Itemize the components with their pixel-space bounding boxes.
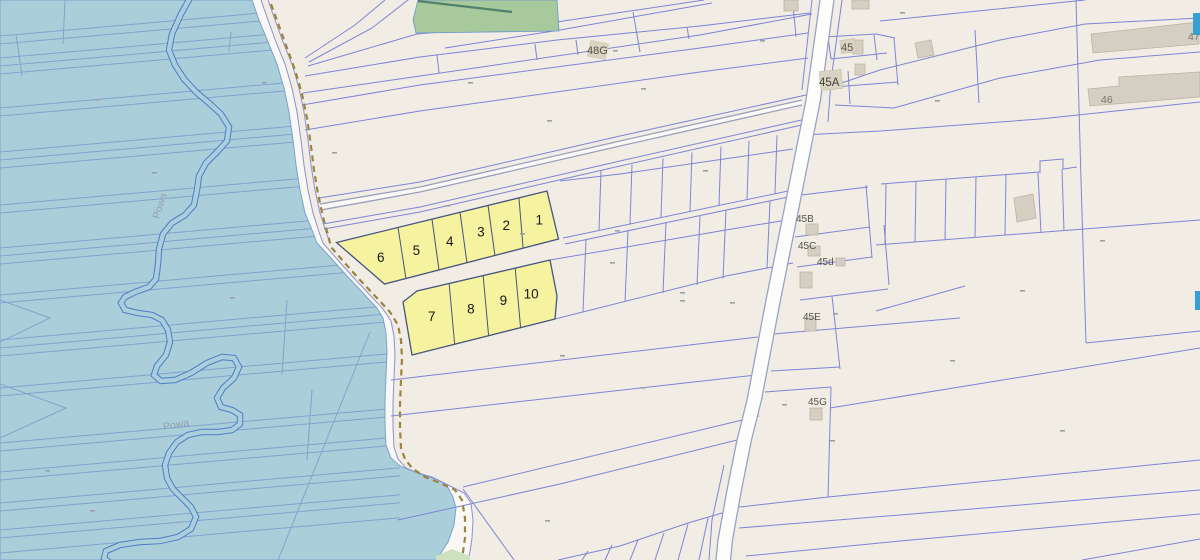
svg-text:45d: 45d: [817, 257, 834, 268]
svg-text:45: 45: [841, 42, 853, 54]
svg-text:4: 4: [446, 234, 454, 249]
svg-text:48G: 48G: [587, 45, 608, 57]
svg-text:1: 1: [536, 213, 544, 228]
svg-text:3: 3: [477, 225, 485, 240]
svg-text:45A: 45A: [819, 77, 840, 89]
svg-text:5: 5: [413, 243, 421, 258]
svg-text:7: 7: [428, 309, 436, 324]
svg-text:6: 6: [377, 250, 385, 265]
svg-text:45E: 45E: [803, 312, 821, 323]
svg-text:46: 46: [1101, 94, 1113, 106]
svg-text:45G: 45G: [808, 397, 827, 408]
svg-text:45C: 45C: [798, 241, 816, 252]
svg-text:45B: 45B: [796, 214, 814, 225]
svg-text:8: 8: [467, 302, 475, 317]
svg-text:10: 10: [524, 286, 539, 301]
svg-text:9: 9: [500, 293, 508, 308]
svg-text:2: 2: [503, 218, 511, 233]
